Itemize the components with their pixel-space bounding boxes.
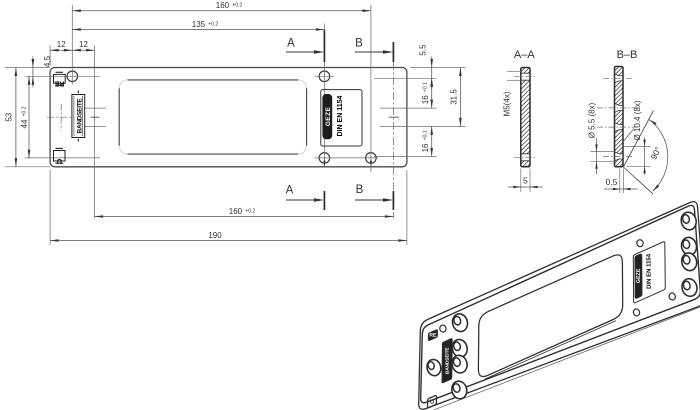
svg-text:12: 12 [57, 40, 66, 49]
svg-text:0.5: 0.5 [606, 177, 618, 187]
svg-text:12: 12 [79, 40, 88, 49]
svg-text:B: B [356, 184, 364, 196]
svg-text:GEZE: GEZE [636, 268, 642, 283]
svg-text:A: A [287, 38, 295, 50]
svg-text:31.5: 31.5 [449, 89, 458, 105]
svg-text:4,5: 4,5 [43, 55, 52, 67]
svg-text:5: 5 [523, 176, 528, 186]
svg-text:GEZE: GEZE [325, 107, 332, 127]
svg-text:B–B: B–B [617, 49, 638, 61]
svg-text:5.5: 5.5 [419, 44, 428, 56]
svg-text:B: B [355, 38, 363, 50]
svg-text:BANDSEITE: BANDSEITE [444, 347, 449, 374]
svg-text:DIN EN 1154: DIN EN 1154 [337, 95, 344, 136]
svg-text:53: 53 [5, 112, 14, 121]
svg-text:A–A: A–A [514, 49, 535, 61]
svg-text:A: A [286, 185, 294, 197]
svg-text:M5(4x): M5(4x) [503, 91, 512, 116]
svg-text:Ø 5.5 (8x): Ø 5.5 (8x) [587, 102, 596, 138]
svg-text:190: 190 [208, 231, 222, 240]
svg-text:U: U [57, 157, 62, 166]
svg-text:BANDSEITE: BANDSEITE [77, 98, 84, 134]
svg-text:DIN EN 1154: DIN EN 1154 [646, 253, 652, 289]
svg-text:U: U [430, 400, 434, 406]
svg-text:RE: RE [429, 333, 437, 339]
